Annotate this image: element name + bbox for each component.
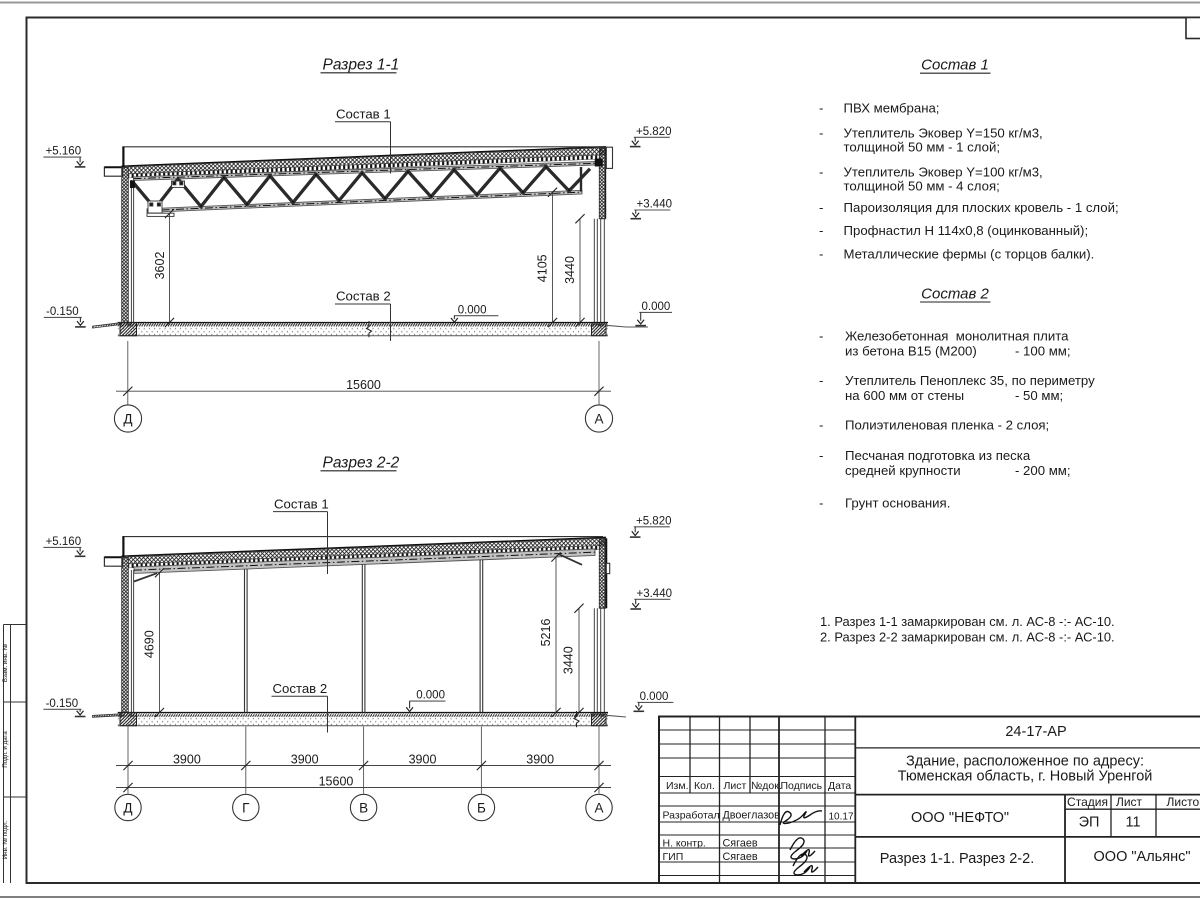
svg-text:4690: 4690	[142, 630, 156, 658]
svg-text:3602: 3602	[153, 252, 167, 280]
svg-text:Полиэтиленовая пленка - 2 слоя: Полиэтиленовая пленка - 2 слоя;	[845, 418, 1049, 433]
svg-text:Здание, расположенное по адрес: Здание, расположенное по адресу:	[906, 754, 1144, 770]
svg-text:Состав 1: Состав 1	[336, 107, 391, 122]
svg-text:Сягаев: Сягаев	[723, 851, 758, 863]
svg-text:Лист: Лист	[1116, 795, 1143, 809]
svg-text:Разрез 1-1. Разрез 2-2.: Разрез 1-1. Разрез 2-2.	[880, 851, 1034, 867]
svg-text:3900: 3900	[526, 752, 554, 766]
svg-text:+5.820: +5.820	[636, 515, 672, 527]
svg-text:15600: 15600	[346, 378, 381, 392]
svg-text:А: А	[594, 411, 603, 426]
svg-text:+5.160: +5.160	[46, 536, 82, 548]
svg-text:средней крупности: средней крупности	[845, 463, 961, 478]
svg-text:-0.150: -0.150	[46, 306, 79, 318]
svg-text:Песчаная подготовка из песка: Песчаная подготовка из песка	[845, 448, 1031, 463]
svg-text:Г: Г	[242, 800, 250, 815]
svg-text:5216: 5216	[539, 619, 553, 647]
svg-text:Металлические фермы (с торцов: Металлические фермы (с торцов балки).	[844, 247, 1095, 262]
svg-text:3440: 3440	[563, 256, 577, 284]
svg-text:Состав 1: Состав 1	[921, 57, 989, 74]
svg-text:Тюменская область, г. Новый Ур: Тюменская область, г. Новый Уренгой	[898, 768, 1153, 784]
svg-text:Кол.: Кол.	[694, 780, 715, 792]
svg-text:Д: Д	[123, 411, 132, 426]
svg-text:Стадия: Стадия	[1067, 795, 1108, 809]
svg-text:Инв. № подл.: Инв. № подл.	[2, 820, 9, 859]
svg-text:2. Разрез 2-2 замаркирован см.: 2. Разрез 2-2 замаркирован см. л. АС-8 -…	[820, 630, 1115, 645]
svg-text:3900: 3900	[409, 752, 437, 766]
svg-text:Железобетонная монолитная пли: Железобетонная монолитная плита	[845, 329, 1069, 344]
svg-text:ПВХ мембрана;: ПВХ мембрана;	[844, 100, 940, 115]
svg-text:+3.440: +3.440	[637, 588, 673, 600]
svg-text:11: 11	[1125, 815, 1140, 831]
svg-text:на 600 мм от стены: на 600 мм от стены	[845, 388, 964, 403]
svg-text:-: -	[819, 223, 823, 238]
svg-text:-: -	[819, 126, 823, 141]
svg-text:Разработал: Разработал	[663, 810, 720, 822]
svg-text:А: А	[594, 800, 603, 815]
svg-text:-: -	[819, 247, 823, 262]
svg-text:+3.440: +3.440	[637, 199, 673, 211]
svg-text:Взам. инв. №: Взам. инв. №	[2, 643, 9, 682]
svg-text:Сягаев: Сягаев	[723, 838, 758, 850]
svg-text:ГИП: ГИП	[663, 851, 684, 863]
svg-text:Изм.: Изм.	[666, 780, 689, 792]
svg-text:толщиной 50 мм - 1 слой;: толщиной 50 мм - 1 слой;	[844, 140, 1000, 155]
svg-text:0.000: 0.000	[642, 301, 671, 313]
svg-text:из бетона В15 (М200): из бетона В15 (М200)	[845, 344, 977, 359]
svg-text:-: -	[819, 100, 823, 115]
svg-text:- 100 мм;: - 100 мм;	[1015, 344, 1071, 359]
svg-text:В: В	[359, 800, 368, 815]
svg-text:-: -	[819, 329, 823, 344]
svg-text:Разрез 1-1: Разрез 1-1	[323, 57, 400, 74]
svg-text:15600: 15600	[319, 774, 354, 788]
svg-text:- 50 мм;: - 50 мм;	[1015, 388, 1063, 403]
svg-text:3900: 3900	[173, 752, 201, 766]
svg-text:Д: Д	[123, 800, 132, 815]
svg-text:Грунт основания.: Грунт основания.	[845, 496, 950, 511]
svg-text:Утеплитель Эковер Y=100 кг/м3,: Утеплитель Эковер Y=100 кг/м3,	[844, 165, 1043, 180]
svg-text:Состав 2: Состав 2	[273, 681, 328, 696]
svg-text:0.000: 0.000	[416, 690, 445, 702]
svg-text:Пароизоляция для плоских крове: Пароизоляция для плоских кровель - 1 сло…	[844, 200, 1119, 215]
svg-text:Лист: Лист	[724, 780, 747, 792]
svg-text:Н. контр.: Н. контр.	[663, 838, 706, 850]
svg-text:ООО "Альянс": ООО "Альянс"	[1094, 849, 1191, 865]
svg-text:Двоеглазов: Двоеглазов	[723, 810, 781, 822]
svg-text:-0.150: -0.150	[46, 698, 79, 710]
svg-text:Б: Б	[477, 800, 486, 815]
svg-text:Утеплитель Эковер Y=150 кг/м3,: Утеплитель Эковер Y=150 кг/м3,	[844, 126, 1043, 141]
svg-text:+5.160: +5.160	[46, 146, 82, 158]
svg-text:Листов: Листов	[1167, 795, 1200, 809]
svg-text:10.17: 10.17	[829, 812, 854, 823]
svg-text:Дата: Дата	[828, 780, 851, 792]
svg-text:-: -	[819, 373, 823, 388]
svg-text:Состав 2: Состав 2	[336, 289, 391, 304]
svg-text:-: -	[819, 496, 823, 511]
svg-text:Состав 2: Состав 2	[921, 285, 989, 302]
svg-text:№док.: №док.	[751, 780, 782, 792]
svg-text:-: -	[819, 165, 823, 180]
svg-text:толщиной 50 мм - 4 слоя;: толщиной 50 мм - 4 слоя;	[844, 179, 1000, 194]
svg-text:-: -	[819, 418, 823, 433]
svg-text:3900: 3900	[291, 752, 319, 766]
svg-text:+5.820: +5.820	[636, 126, 672, 138]
svg-text:Подпись: Подпись	[781, 780, 823, 792]
svg-text:-: -	[819, 448, 823, 463]
svg-text:- 200 мм;: - 200 мм;	[1015, 463, 1071, 478]
svg-text:3440: 3440	[562, 646, 576, 674]
svg-text:0.000: 0.000	[640, 691, 669, 703]
svg-text:ЭП: ЭП	[1079, 815, 1100, 831]
svg-text:24-17-АР: 24-17-АР	[1005, 724, 1066, 740]
svg-text:Состав 1: Состав 1	[274, 496, 329, 511]
svg-text:Разрез 2-2: Разрез 2-2	[323, 455, 400, 472]
svg-text:0.000: 0.000	[458, 304, 487, 316]
svg-text:4105: 4105	[535, 254, 549, 282]
svg-text:Профнастил Н 114х0,8 (оцинкова: Профнастил Н 114х0,8 (оцинкованный);	[844, 223, 1089, 238]
svg-text:-: -	[819, 200, 823, 215]
svg-text:Подп. и дата: Подп. и дата	[2, 731, 9, 768]
svg-text:ООО "НЕФТО": ООО "НЕФТО"	[911, 810, 1009, 826]
svg-text:Утеплитель Пеноплекс 35, по пе: Утеплитель Пеноплекс 35, по периметру	[845, 373, 1095, 388]
svg-text:1. Разрез 1-1 замаркирован см.: 1. Разрез 1-1 замаркирован см. л. АС-8 -…	[820, 614, 1115, 629]
